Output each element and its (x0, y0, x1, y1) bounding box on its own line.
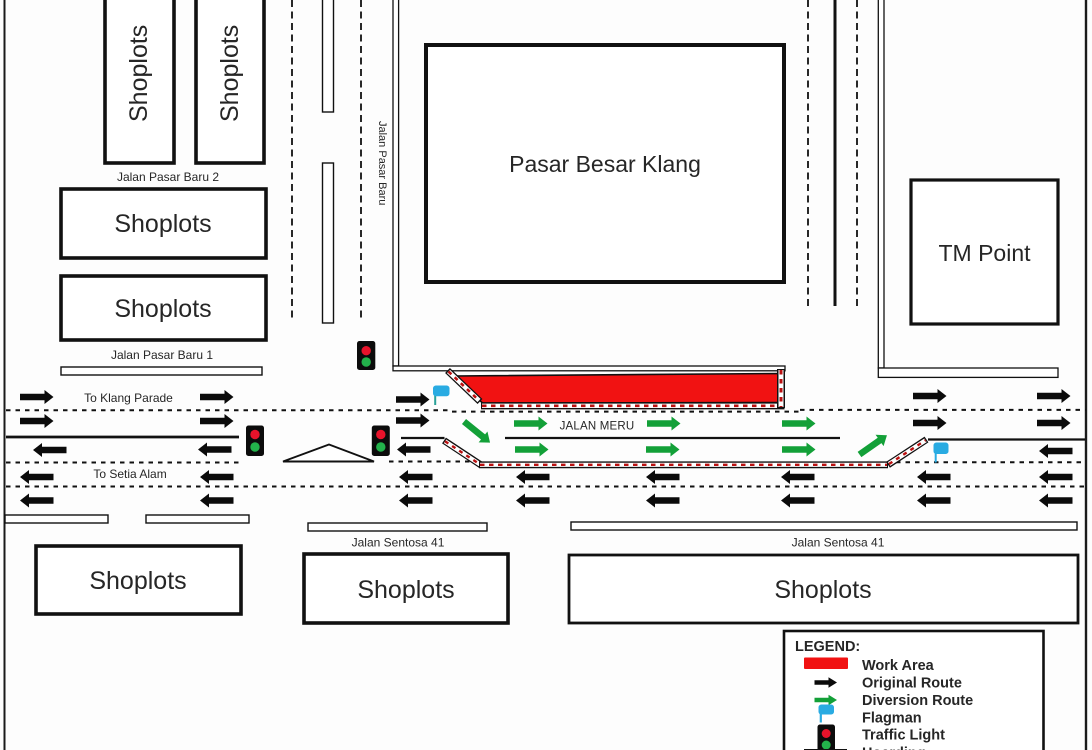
svg-text:Diversion Route: Diversion Route (862, 693, 973, 709)
svg-text:To Setia Alam: To Setia Alam (93, 467, 166, 481)
svg-text:Shoplots: Shoplots (357, 576, 454, 604)
svg-text:Jalan Sentosa 41: Jalan Sentosa 41 (352, 536, 445, 550)
svg-text:Traffic Light: Traffic Light (862, 728, 945, 744)
svg-text:Original Route: Original Route (862, 676, 962, 692)
svg-text:To Klang Parade: To Klang Parade (84, 391, 173, 405)
svg-text:Work Area: Work Area (862, 658, 935, 674)
svg-text:Jalan Pasar Baru 1: Jalan Pasar Baru 1 (111, 348, 213, 362)
svg-text:Shoplots: Shoplots (114, 210, 211, 238)
svg-text:JALAN MERU: JALAN MERU (560, 421, 635, 433)
svg-text:TM Point: TM Point (938, 240, 1031, 266)
svg-text:Jalan Pasar Baru: Jalan Pasar Baru (376, 121, 388, 205)
svg-text:Shoplots: Shoplots (125, 25, 153, 122)
svg-text:Shoplots: Shoplots (114, 295, 211, 323)
svg-text:Jalan Pasar Baru 2: Jalan Pasar Baru 2 (117, 170, 219, 184)
svg-text:LEGEND:: LEGEND: (795, 639, 860, 655)
svg-text:Hoarding: Hoarding (862, 746, 926, 750)
svg-text:Pasar Besar Klang: Pasar Besar Klang (509, 151, 701, 177)
svg-text:Shoplots: Shoplots (774, 576, 871, 604)
svg-text:Shoplots: Shoplots (89, 567, 186, 595)
svg-text:Flagman: Flagman (862, 711, 922, 727)
svg-text:Shoplots: Shoplots (216, 25, 244, 122)
svg-text:Jalan Sentosa 41: Jalan Sentosa 41 (792, 536, 885, 550)
